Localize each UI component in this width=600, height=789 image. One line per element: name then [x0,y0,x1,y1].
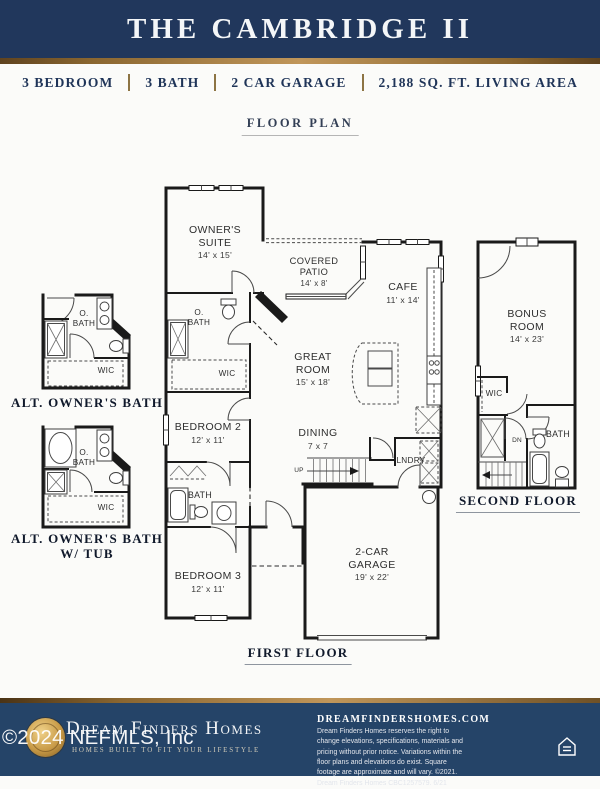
room-covered-patio: COVERED PATIO 14' x 8' [283,256,345,288]
alt1-owners-bath-label: O. BATH [70,309,98,329]
owners-suite-interior [166,271,263,392]
mls-watermark: ©2024 NEFMLS, Inc [2,726,194,750]
second-floor-title: SECOND FLOOR [456,494,580,513]
alt1-wic-label: WIC [98,366,115,376]
alt2-wic-label: WIC [98,503,115,513]
second-floor-walls [476,238,576,488]
equal-housing-icon [556,736,578,758]
bedrooms-interior [166,358,292,553]
first-floor-title: FIRST FLOOR [245,646,352,665]
alt-owners-bath-tub-plan [43,427,131,527]
room-wic-second: WIC [486,389,503,399]
footer-website: DREAMFINDERSHOMES.COM [317,714,490,725]
room-bath-first: BATH [188,490,212,501]
room-bedroom-2: BEDROOM 2 12' x 11' [163,421,253,445]
alt-owners-bath-title: ALT. OWNER'S BATH [11,396,163,411]
covered-patio-outline [253,239,366,345]
footer-disclaimer: Dream Finders Homes reserves the right t… [317,727,469,789]
room-bedroom-3: BEDROOM 3 12' x 11' [163,570,253,594]
room-owners-bath: O. BATH [185,308,213,328]
alt2-owners-bath-label: O. BATH [70,448,98,468]
floor-plan-flyer: { "header": { "title": "THE CAMBRIDGE II… [0,0,600,776]
stairs-down-label: DN [512,437,522,444]
room-wic-first: WIC [219,369,236,379]
room-bath-second: BATH [546,429,570,440]
room-laundry: LNDRY [396,456,425,466]
alt-owners-bath-tub-title: ALT. OWNER'S BATH W/ TUB [11,532,163,562]
room-garage: 2-CAR GARAGE 19' x 22' [345,546,399,582]
stairs-up-label: UP [294,467,303,474]
room-dining: DINING 7 x 7 [288,427,348,451]
room-bonus: BONUS ROOM 14' x 23' [502,308,552,344]
room-owners-suite: OWNER'S SUITE 14' x 15' [179,224,251,260]
room-cafe: CAFE 11' x 14' [368,281,438,305]
room-great-room: GREAT ROOM 15' x 18' [285,351,341,387]
